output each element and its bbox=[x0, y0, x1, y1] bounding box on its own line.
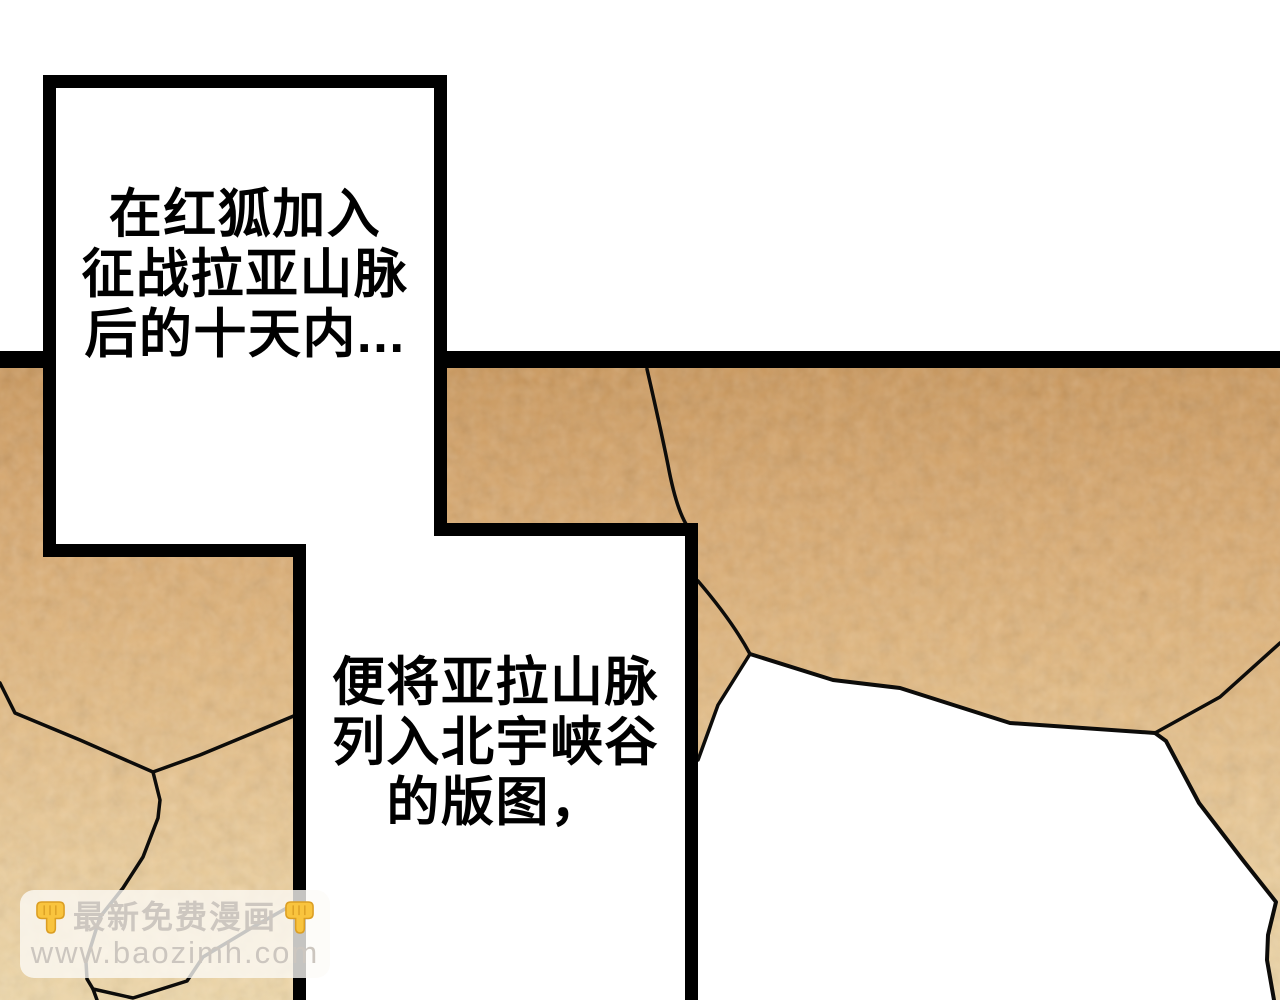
narration-line: 征战拉亚山脉 bbox=[56, 245, 434, 305]
watermark-url: www.baozimh.com bbox=[31, 936, 319, 969]
narration-line: 列入北宇峡谷 bbox=[306, 713, 685, 773]
narration-line: 在红狐加入 bbox=[56, 185, 434, 245]
border-merge-patch bbox=[306, 536, 447, 557]
narration-box-1: 在红狐加入 征战拉亚山脉 后的十天内... bbox=[43, 75, 447, 557]
narration-line: 后的十天内... bbox=[56, 305, 434, 365]
pointing-down-emoji-icon bbox=[284, 900, 315, 935]
watermark-title-row: 最新免费漫画 bbox=[35, 900, 315, 935]
narration-line: 便将亚拉山脉 bbox=[306, 653, 685, 713]
watermark: 最新免费漫画 www.baozimh.com bbox=[20, 890, 330, 978]
watermark-title: 最新免费漫画 bbox=[73, 900, 277, 934]
comic-page: 便将亚拉山脉 列入北宇峡谷 的版图， 在红狐加入 征战拉亚山脉 后的十天内...… bbox=[0, 0, 1280, 1000]
pointing-down-emoji-icon bbox=[35, 900, 66, 935]
narration-line: 的版图， bbox=[306, 773, 685, 833]
narration-box-2: 便将亚拉山脉 列入北宇峡谷 的版图， bbox=[293, 523, 698, 1000]
